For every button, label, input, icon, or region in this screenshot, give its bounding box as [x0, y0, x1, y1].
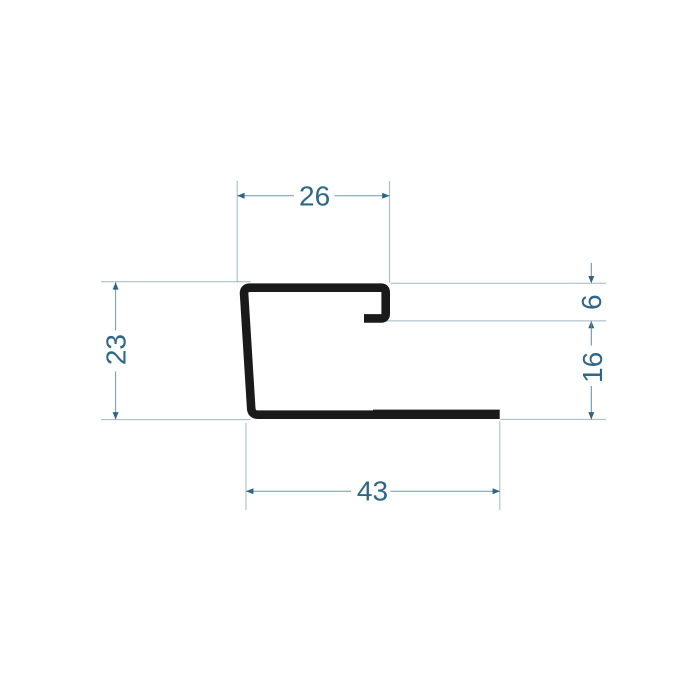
- svg-text:16: 16: [577, 352, 608, 383]
- svg-text:23: 23: [101, 334, 132, 365]
- svg-text:43: 43: [357, 476, 388, 507]
- svg-text:6: 6: [576, 294, 607, 310]
- svg-text:26: 26: [299, 181, 330, 212]
